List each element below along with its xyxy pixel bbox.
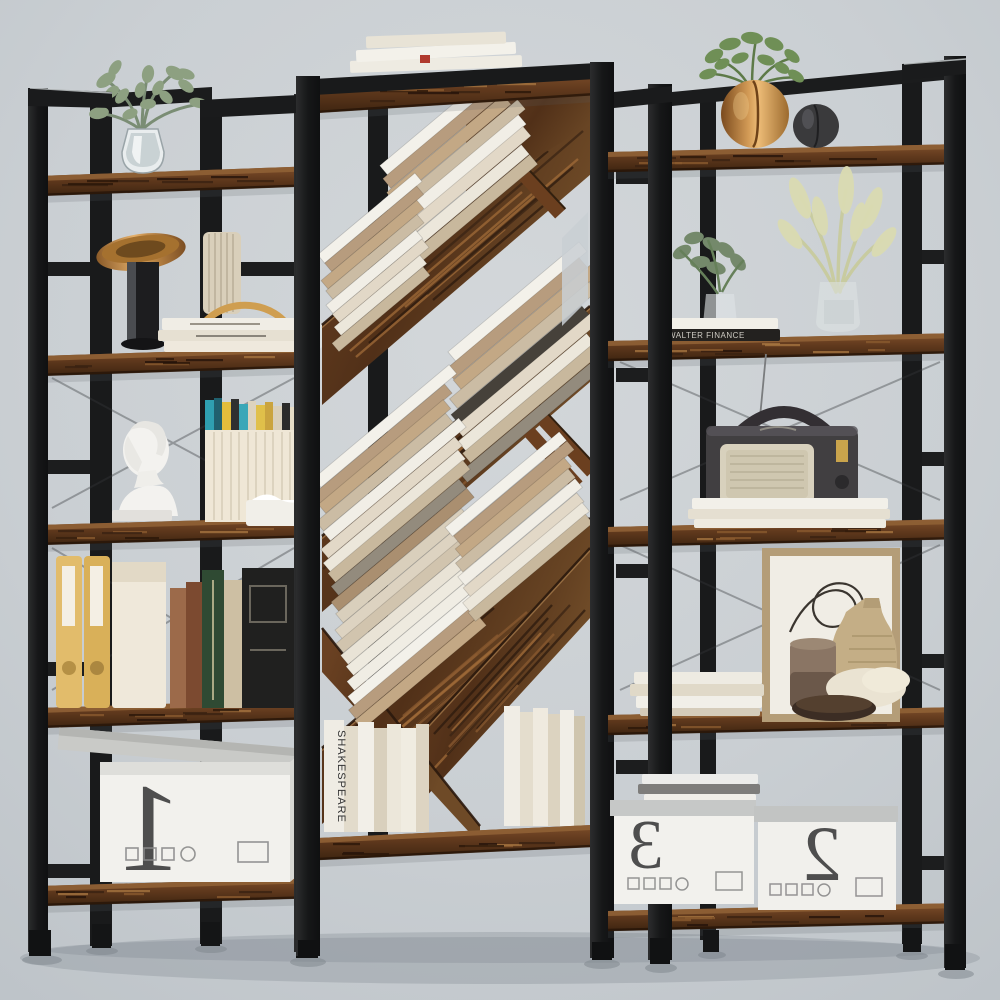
svg-text:WALTER FINANCE: WALTER FINANCE — [668, 331, 745, 340]
svg-text:1: 1 — [119, 759, 182, 898]
svg-text:SHAKESPEARE: SHAKESPEARE — [335, 730, 347, 823]
svg-text:3: 3 — [629, 807, 664, 884]
